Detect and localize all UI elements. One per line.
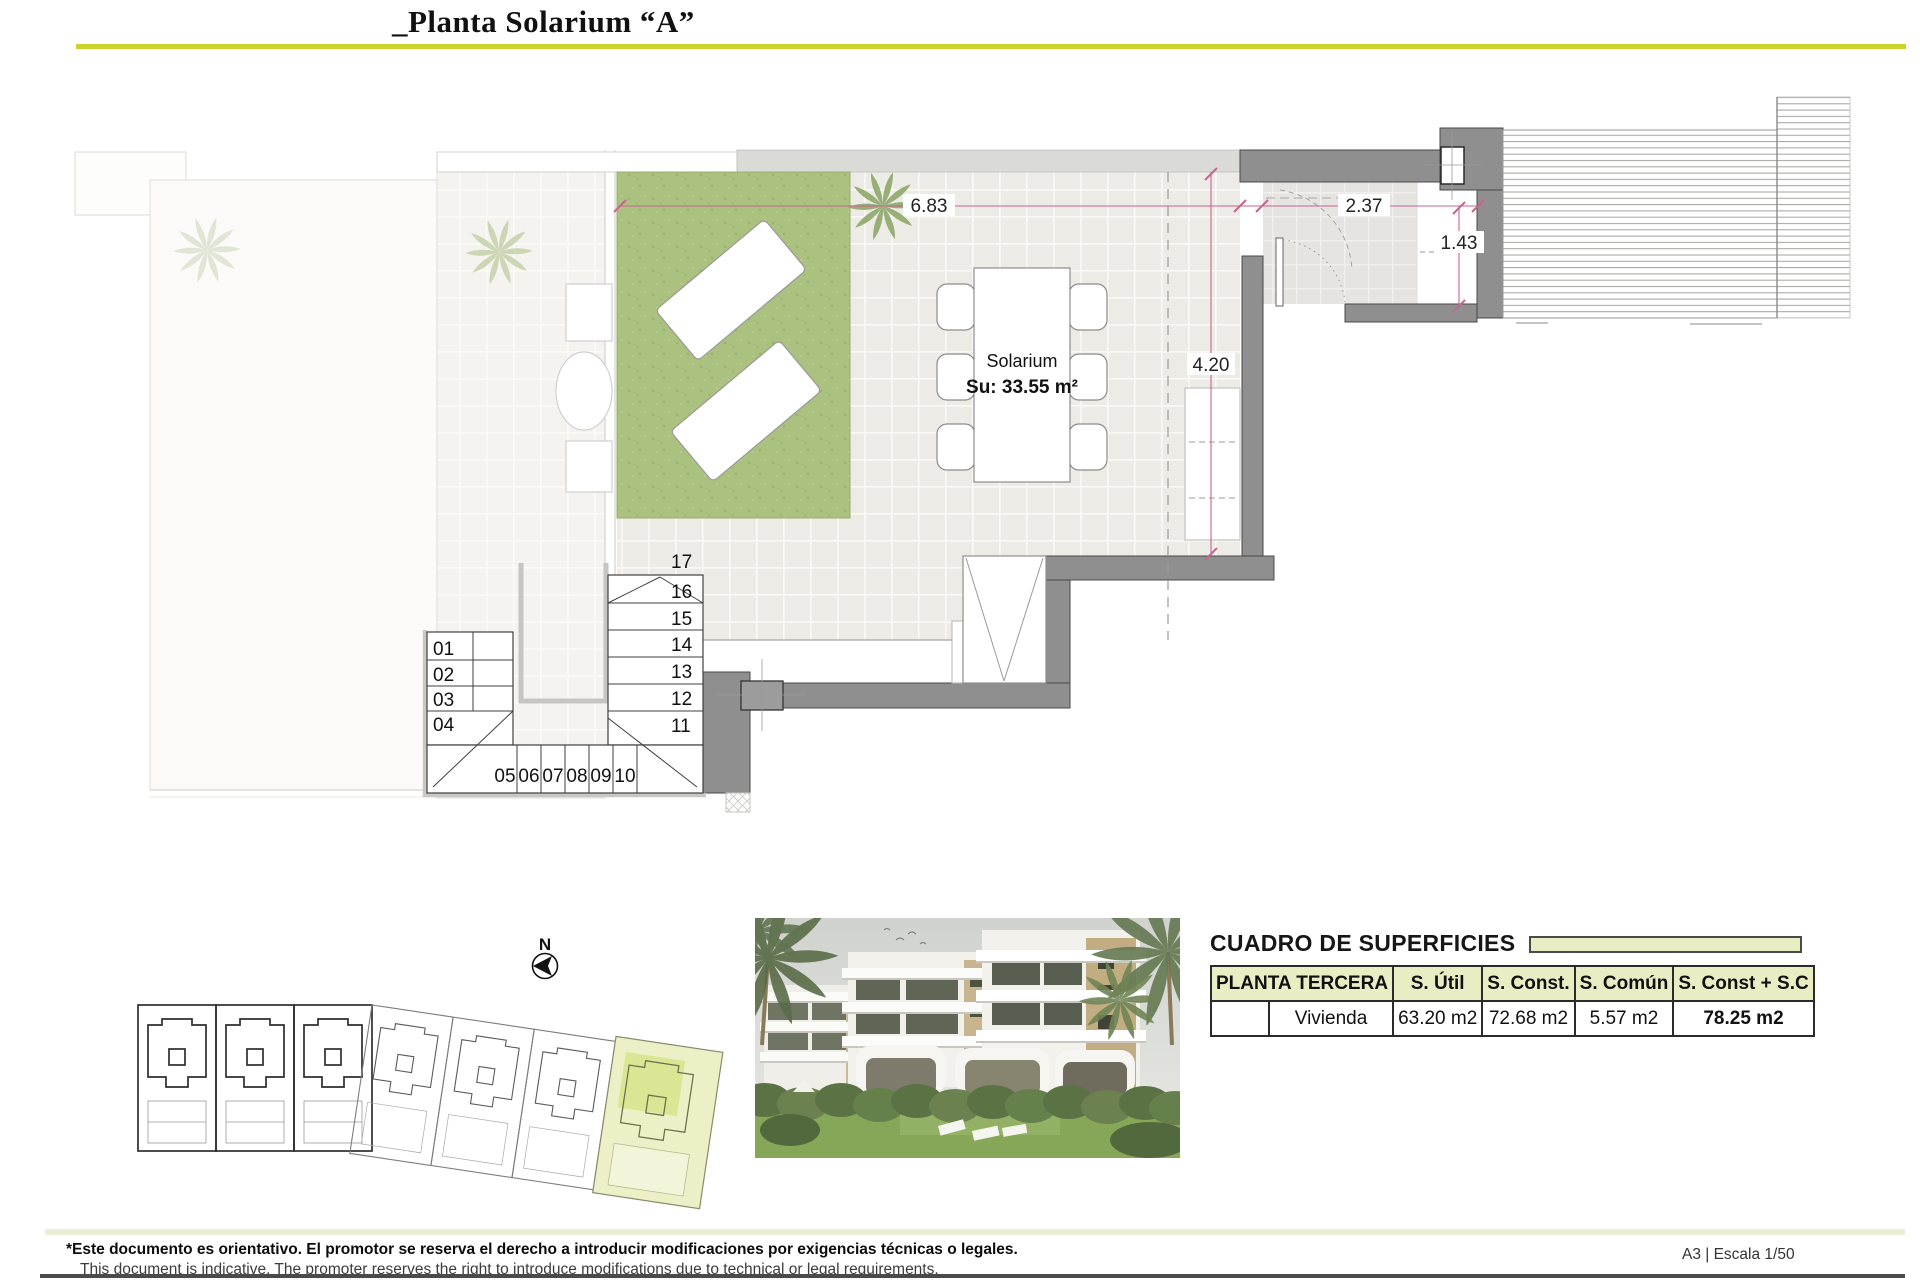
site-plot-row [138,1005,372,1151]
dining-set [937,268,1107,482]
chair [937,424,975,470]
stair-number: 10 [614,766,635,787]
stair-number: 03 [433,690,454,711]
chair [1069,284,1107,330]
total-value-cell: 78.25 m2 [1673,1001,1813,1036]
room-label: Solarium [986,351,1057,371]
stair-number: 05 [494,766,515,787]
surfaces-title-bar [1529,936,1802,953]
site-gardens [148,1101,362,1143]
empty-cell [1211,1001,1269,1036]
col-header-total: S. Const + S.C [1673,966,1813,1001]
wall-planter [1185,388,1240,540]
stair-number: 08 [566,766,587,787]
col-header-comun: S. Común [1575,966,1674,1001]
terrace-door [952,556,1046,683]
const-value-cell: 72.68 m2 [1482,1001,1574,1036]
hatched-wall-strip [726,793,750,812]
floor-header-cell: PLANTA TERCERA [1211,966,1393,1001]
stair-number: 04 [433,715,455,736]
north-arrow-icon: N [533,935,558,979]
stair-number: 14 [671,635,693,656]
disclaimer-es: *Este documento es orientativo. El promo… [66,1241,1018,1259]
stair-number: 09 [590,766,611,787]
site-plot-highlighted [593,1036,723,1208]
north-label: N [539,935,551,954]
chair [1069,424,1107,470]
stair-number: 02 [433,665,454,686]
plan-sheet: _Planta Solarium “A” [0,0,1920,1280]
parapet-band-gray [737,150,1240,172]
stair-number: 01 [433,639,454,660]
building-photo [698,876,1245,1158]
page-bottom-rule [40,1274,1905,1278]
stair-number: 06 [518,766,539,787]
dimension-value: 2.37 [1346,196,1383,217]
site-plot-row-angled [349,1000,722,1209]
dimension-value: 4.20 [1193,355,1230,376]
stair-number: 13 [671,662,692,683]
floor-plan: 17 16 15 14 13 12 11 01 02 03 04 05 06 0… [75,97,1850,812]
stair-number: 15 [671,609,692,630]
floor-plan-drawing: 17 16 15 14 13 12 11 01 02 03 04 05 06 0… [0,0,1920,1280]
terrace-far-left [150,180,437,790]
table [974,268,1070,482]
site-plan: N [138,935,723,1209]
stair-number: 12 [671,689,692,710]
stair-number: 17 [671,552,692,573]
col-header-const: S. Const. [1482,966,1574,1001]
row-label-cell: Vivienda [1269,1001,1393,1036]
door-leaf [1276,238,1283,306]
util-value-cell: 63.20 m2 [1393,1001,1482,1036]
surfaces-table: PLANTA TERCERA S. Útil S. Const. S. Comú… [1210,965,1815,1037]
room-area-label: Su: 33.55 m² [966,377,1078,398]
chair [937,284,975,330]
dimension-value: 6.83 [911,196,948,217]
parapet-band-white [437,152,737,172]
footer-accent-line [45,1229,1905,1235]
table-row: Vivienda 63.20 m2 72.68 m2 5.57 m2 78.25… [1211,1001,1814,1036]
pergola-louvers [1503,97,1850,324]
col-header-util: S. Útil [1393,966,1482,1001]
table-header-row: PLANTA TERCERA S. Útil S. Const. S. Comú… [1211,966,1814,1001]
sheet-scale-info: A3 | Escala 1/50 [1682,1246,1795,1264]
surfaces-title: CUADRO DE SUPERFICIES [1210,930,1515,957]
stair-number: 11 [671,716,691,737]
lawn-area [617,172,850,518]
comun-value-cell: 5.57 m2 [1575,1001,1674,1036]
dimension-value: 1.43 [1441,233,1478,254]
stair-number: 16 [671,582,692,603]
stair-number: 07 [542,766,563,787]
surfaces-panel: CUADRO DE SUPERFICIES PLANTA TERCERA S. … [1210,930,1802,1037]
